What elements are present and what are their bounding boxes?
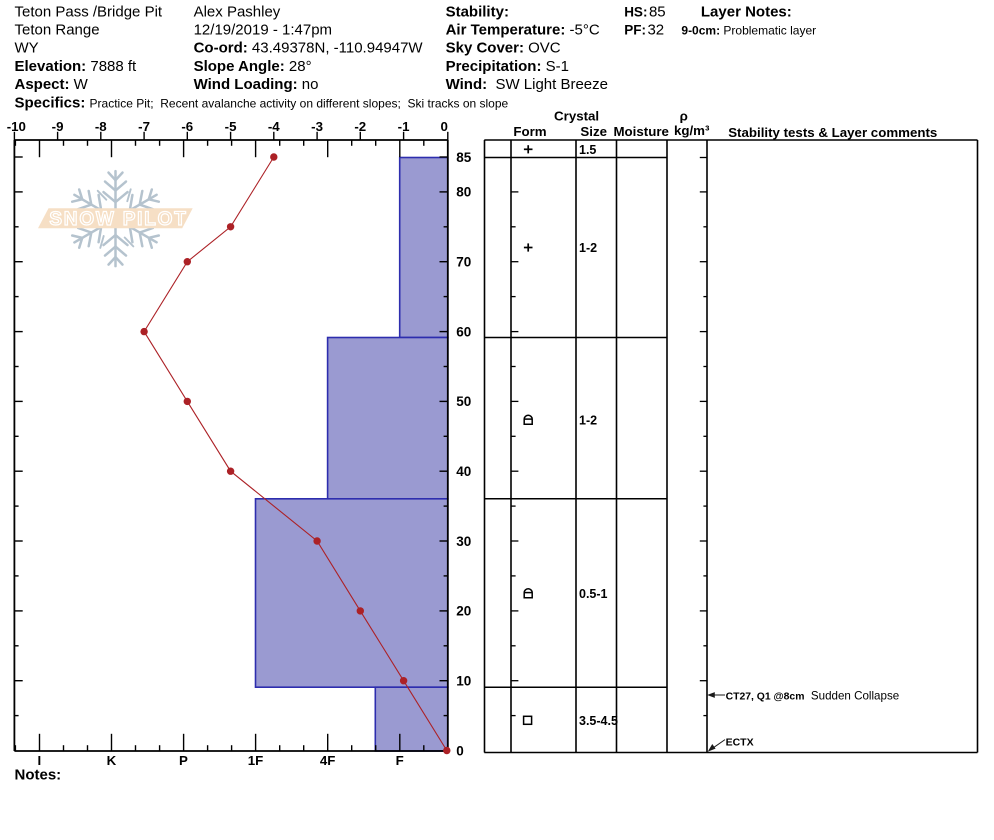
svg-text:1-2: 1-2 — [579, 414, 597, 428]
svg-text:kg/m³: kg/m³ — [674, 123, 710, 138]
svg-text:0: 0 — [456, 743, 464, 758]
svg-text:Air Temperature: -5°C: Air Temperature: -5°C — [446, 22, 600, 39]
svg-text:-10: -10 — [7, 119, 26, 134]
svg-text:1.5: 1.5 — [579, 143, 596, 157]
svg-text:K: K — [107, 753, 117, 768]
svg-text:Co-ord: 43.49378N, -110.94947W: Co-ord: 43.49378N, -110.94947W — [194, 40, 424, 57]
svg-text:SNOW PILOT: SNOW PILOT — [49, 209, 187, 230]
svg-text:Sky Cover: OVC: Sky Cover: OVC — [446, 40, 561, 57]
svg-text:-8: -8 — [95, 119, 107, 134]
svg-text:-9: -9 — [52, 119, 64, 134]
svg-text:Wind: SW Light Breeze: Wind: SW Light Breeze — [446, 76, 608, 93]
svg-text:Stability tests & Layer commen: Stability tests & Layer comments — [728, 125, 937, 140]
svg-text:10: 10 — [456, 674, 471, 689]
svg-text:ρ: ρ — [680, 109, 688, 124]
svg-text:12/19/2019 - 1:47pm: 12/19/2019 - 1:47pm — [194, 22, 332, 39]
svg-text:Teton Range: Teton Range — [15, 22, 100, 39]
svg-text:3.5-4.5: 3.5-4.5 — [579, 714, 618, 728]
svg-text:ECTX: ECTX — [726, 737, 754, 749]
svg-text:Slope Angle: 28°: Slope Angle: 28° — [194, 58, 312, 75]
svg-text:Precipitation: S-1: Precipitation: S-1 — [446, 58, 569, 75]
svg-text:Layer Notes:: Layer Notes: — [701, 3, 792, 20]
svg-text:-1: -1 — [398, 119, 410, 134]
svg-text:0.5-1: 0.5-1 — [579, 587, 608, 601]
svg-text:P: P — [179, 753, 188, 768]
svg-text:80: 80 — [456, 185, 471, 200]
svg-text:-3: -3 — [311, 119, 323, 134]
svg-text:Notes:: Notes: — [15, 767, 62, 784]
svg-text:30: 30 — [456, 534, 471, 549]
svg-text:Stability:: Stability: — [446, 3, 509, 20]
svg-text:Wind Loading: no: Wind Loading: no — [194, 76, 319, 93]
svg-text:-2: -2 — [354, 119, 366, 134]
svg-text:-4: -4 — [268, 119, 280, 134]
svg-text:Elevation: 7888 ft: Elevation: 7888 ft — [15, 58, 138, 75]
svg-text:-6: -6 — [181, 119, 193, 134]
svg-text:40: 40 — [456, 464, 471, 479]
svg-text:9-0cm: Problematic layer: 9-0cm: Problematic layer — [681, 24, 816, 38]
svg-text:HS:85: HS:85 — [624, 3, 665, 20]
svg-text:1-2: 1-2 — [579, 241, 597, 255]
svg-text:Moisture: Moisture — [613, 124, 668, 139]
svg-text:0: 0 — [440, 119, 447, 134]
svg-text:1F: 1F — [248, 753, 264, 768]
svg-text:F: F — [396, 753, 404, 768]
svg-text:PF:32: PF:32 — [624, 22, 664, 39]
svg-text:Size: Size — [580, 124, 607, 139]
svg-text:CT27, Q1 @8cm Sudden Collapse: CT27, Q1 @8cm Sudden Collapse — [726, 690, 900, 703]
svg-text:50: 50 — [456, 394, 471, 409]
svg-text:Form: Form — [513, 124, 546, 139]
svg-text:-7: -7 — [138, 119, 150, 134]
svg-text:Aspect: W: Aspect: W — [15, 76, 89, 93]
svg-text:4F: 4F — [320, 753, 336, 768]
svg-text:Crystal: Crystal — [554, 109, 599, 124]
svg-text:Alex Pashley: Alex Pashley — [194, 3, 281, 20]
svg-text:20: 20 — [456, 604, 471, 619]
svg-text:70: 70 — [456, 255, 471, 270]
svg-text:85: 85 — [456, 150, 472, 165]
svg-text:Teton Pass /Bridge Pit: Teton Pass /Bridge Pit — [15, 3, 163, 20]
svg-text:WY: WY — [15, 40, 39, 57]
svg-text:Specifics: Practice Pit; Rece: Specifics: Practice Pit; Recent avalanch… — [15, 94, 509, 111]
svg-text:60: 60 — [456, 324, 471, 339]
svg-text:-5: -5 — [225, 119, 237, 134]
